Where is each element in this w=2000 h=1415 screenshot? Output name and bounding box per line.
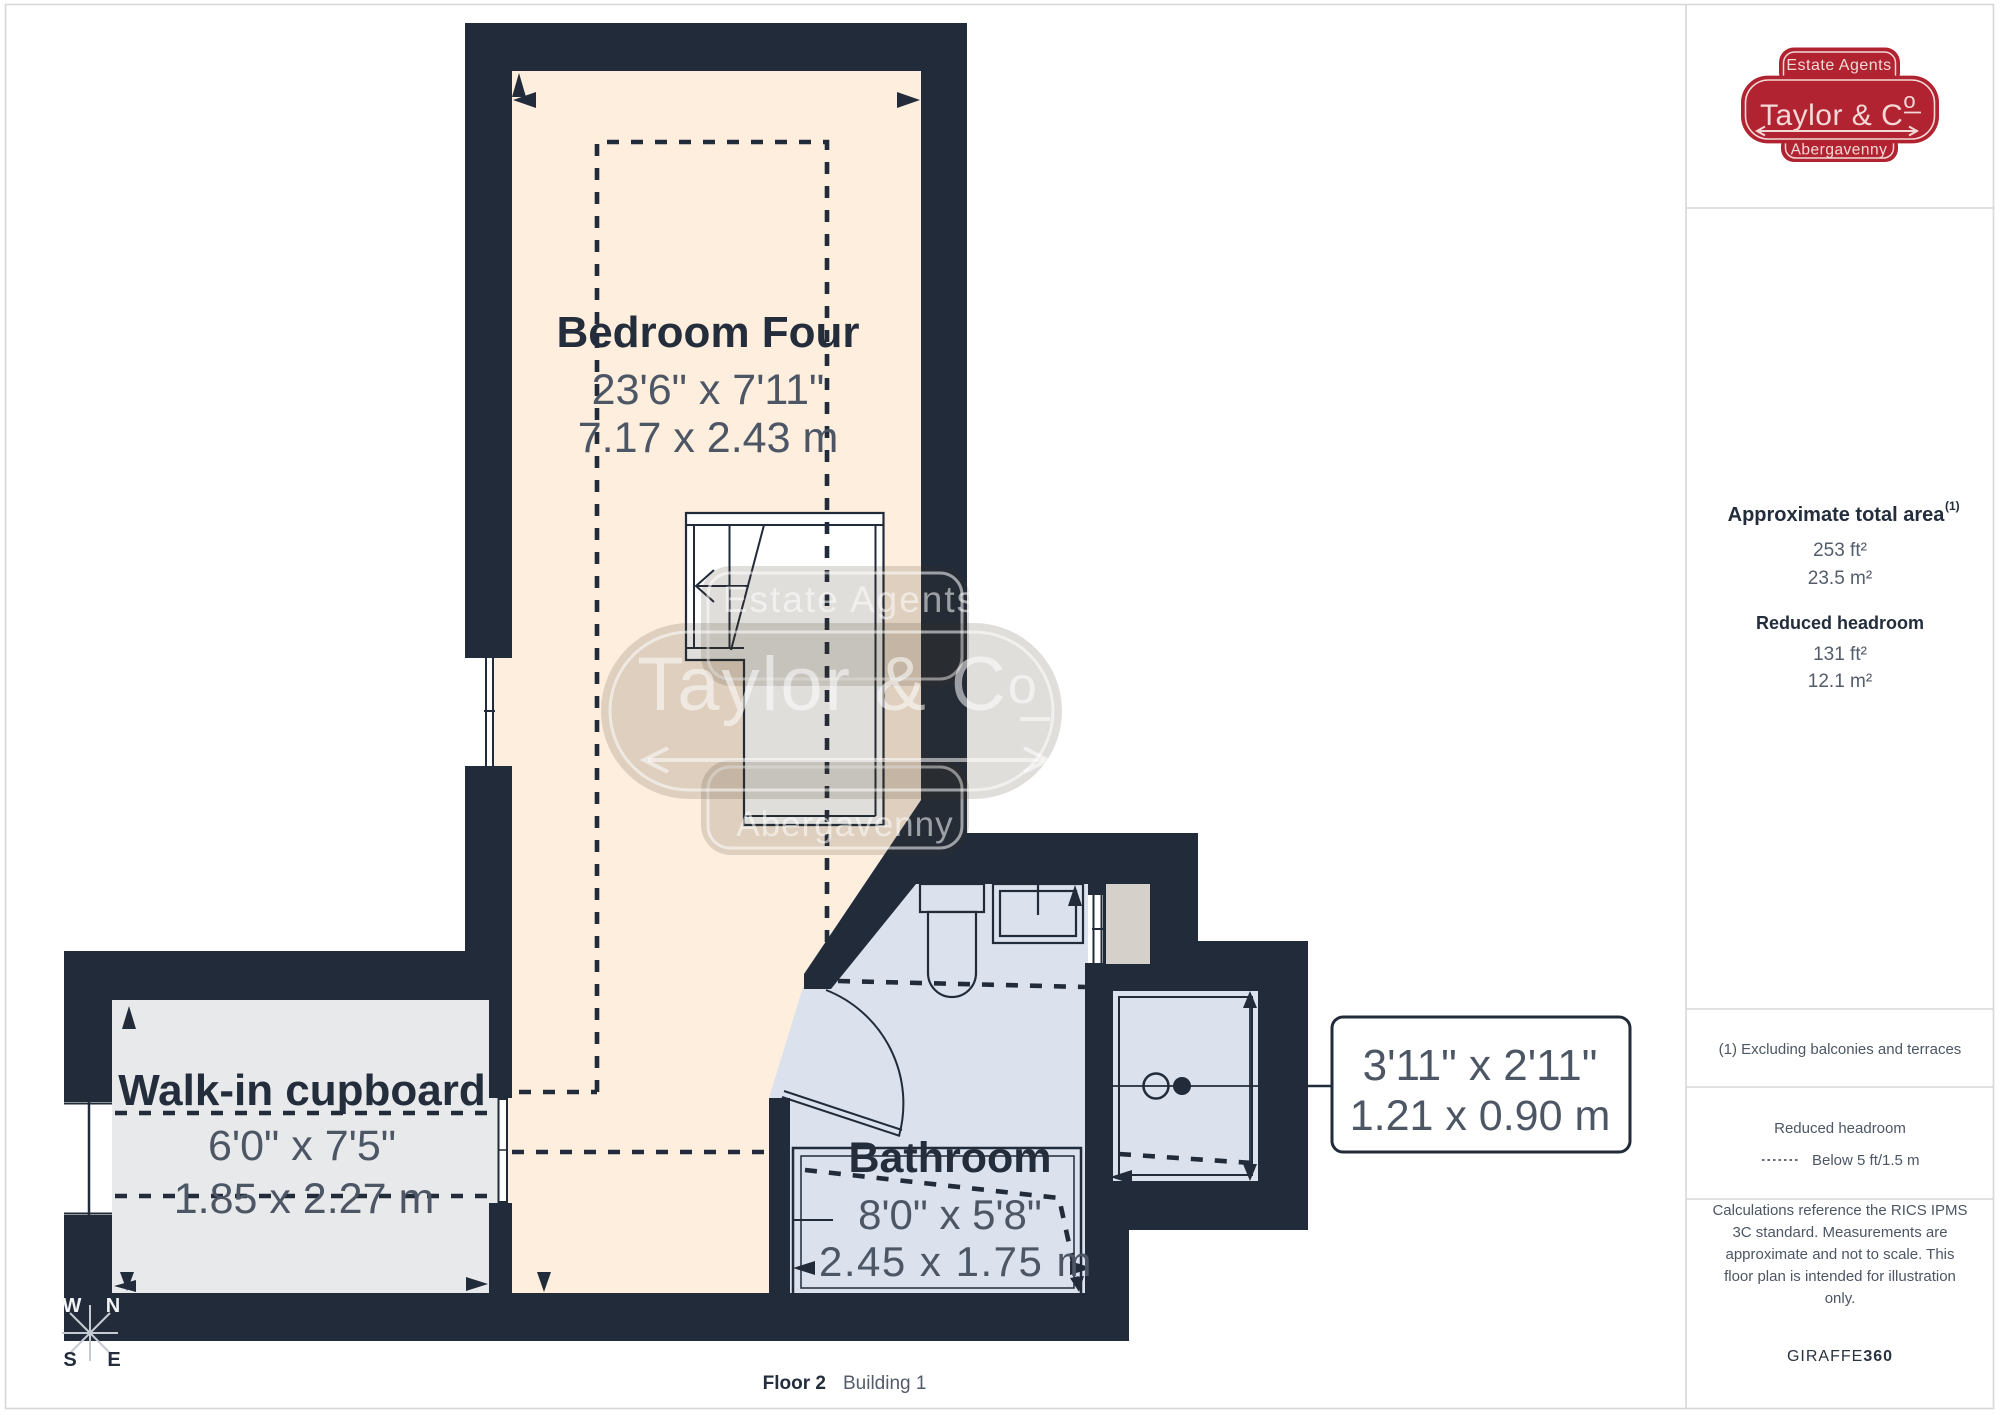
svg-text:GIRAFFE360: GIRAFFE360 [1787,1348,1893,1365]
svg-text:131 ft²: 131 ft² [1813,644,1867,665]
svg-text:Taylor & Co: Taylor & Co [637,642,1038,727]
svg-text:(1): (1) [1945,499,1960,513]
svg-text:Abergavenny: Abergavenny [1791,142,1888,159]
svg-text:floor plan is intended for ill: floor plan is intended for illustration [1724,1268,1956,1285]
svg-text:Below 5 ft/1.5 m: Below 5 ft/1.5 m [1812,1152,1920,1169]
svg-text:Bedroom Four: Bedroom Four [556,308,859,357]
svg-text:253 ft²: 253 ft² [1813,540,1867,561]
svg-text:Reduced headroom: Reduced headroom [1774,1120,1906,1137]
svg-text:Calculations reference the RIC: Calculations reference the RICS IPMS [1712,1202,1967,1219]
svg-text:23.5 m²: 23.5 m² [1808,568,1872,589]
svg-text:only.: only. [1825,1290,1856,1307]
svg-text:2.45 x 1.75 m: 2.45 x 1.75 m [819,1238,1093,1285]
svg-text:E: E [107,1349,120,1371]
svg-text:1.21 x 0.90 m: 1.21 x 0.90 m [1350,1092,1611,1140]
svg-text:23'6" x 7'11": 23'6" x 7'11" [592,366,825,414]
svg-text:approximate and not to scale.: approximate and not to scale. This [1725,1246,1954,1263]
svg-text:12.1 m²: 12.1 m² [1808,671,1872,692]
svg-text:Abergavenny: Abergavenny [736,805,953,844]
svg-text:Approximate total area: Approximate total area [1728,504,1946,526]
svg-text:7.17 x 2.43 m: 7.17 x 2.43 m [578,414,839,462]
svg-text:Bathroom: Bathroom [848,1134,1051,1182]
svg-text:(1) Excluding balconies and te: (1) Excluding balconies and terraces [1719,1041,1962,1058]
svg-text:Reduced headroom: Reduced headroom [1756,613,1924,633]
svg-text:N: N [106,1295,120,1317]
svg-text:Walk-in cupboard: Walk-in cupboard [118,1066,486,1115]
svg-text:3'11" x 2'11": 3'11" x 2'11" [1363,1041,1598,1090]
svg-text:6'0" x 7'5": 6'0" x 7'5" [208,1122,396,1170]
svg-text:1.85 x 2.27 m: 1.85 x 2.27 m [174,1175,435,1223]
svg-text:Estate Agents: Estate Agents [1786,57,1891,74]
svg-text:W: W [63,1295,82,1317]
svg-text:Floor 2: Floor 2 [763,1373,826,1394]
svg-text:Estate Agents: Estate Agents [723,579,977,620]
svg-text:3C standard. Measurements are: 3C standard. Measurements are [1732,1224,1947,1241]
svg-text:Building 1: Building 1 [843,1373,926,1394]
svg-text:8'0" x 5'8": 8'0" x 5'8" [858,1191,1042,1238]
svg-text:S: S [63,1349,76,1371]
